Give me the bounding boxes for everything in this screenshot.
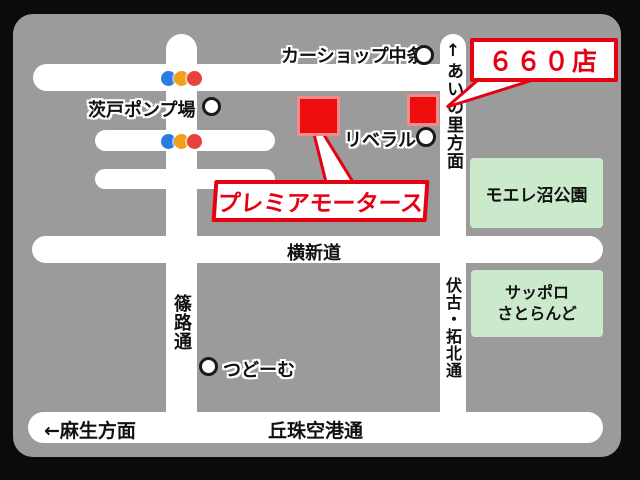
landmark-circle-icon [416, 127, 436, 147]
access-map: 横新道 ←麻生方面 丘珠空港通 ↑あいの里方面 伏古・拓北通 篠路通 カーショッ… [0, 0, 640, 480]
area-satoland-label-line1: サッポロ [505, 283, 569, 304]
landmark-label-car-shop-nakajo: カーショップ中条 [281, 42, 425, 68]
road-label-okadama: 丘珠空港通 [268, 416, 363, 443]
landmark-circle-icon [199, 357, 218, 376]
traffic-light-icon [163, 71, 202, 86]
dealer-name-callout: プレミアモータース [212, 180, 430, 222]
area-moere-park-label: モエレ沼公園 [486, 181, 588, 206]
landmark-circle-icon [202, 97, 221, 116]
road-label-shinoro: 篠路通 [172, 294, 190, 351]
landmark-circle-icon [414, 45, 434, 65]
dealer-location-square [300, 99, 337, 133]
road-shinoro-vertical [166, 34, 197, 440]
secondary-location-square [410, 97, 436, 123]
road-label-fushiko-takuhoku: 伏古・拓北通 [444, 277, 460, 379]
store-badge-label: ６６０店 [488, 42, 600, 78]
traffic-light-red-dot [187, 71, 202, 86]
area-moere-park: モエレ沼公園 [470, 158, 603, 228]
area-satoland-label-line2: さとらんど [497, 304, 577, 325]
landmark-label-liberal: リベラル [344, 126, 416, 152]
landmark-label-barato-pump: 茨戸ポンプ場 [88, 96, 195, 122]
road-top-horizontal [33, 64, 453, 91]
area-satoland: サッポロ さとらんど [471, 270, 603, 337]
landmark-label-tsudome: つどーむ [223, 356, 295, 382]
traffic-light-red-dot [187, 134, 202, 149]
road-label-ainosato-direction: ↑あいの里方面 [444, 41, 461, 170]
traffic-light-icon [163, 134, 202, 149]
store-badge-callout: ６６０店 [470, 38, 618, 82]
road-label-yokoshindo: 横新道 [287, 239, 341, 265]
dealer-name-label: プレミアモータース [216, 184, 424, 218]
road-label-asabu-direction: ←麻生方面 [44, 416, 136, 443]
